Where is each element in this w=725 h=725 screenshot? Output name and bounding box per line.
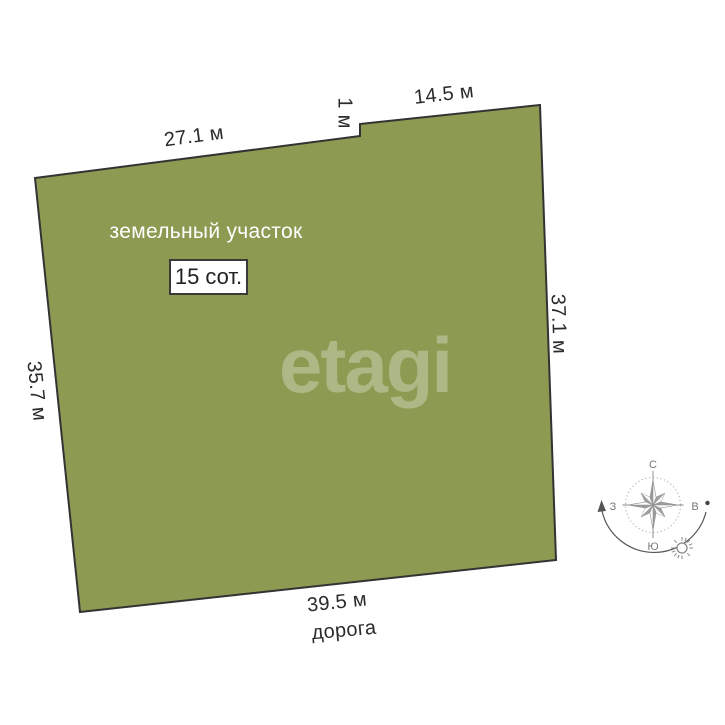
parcel-area-value: 15 сот.: [175, 264, 242, 290]
sun-path-arrowhead-icon: [598, 500, 607, 512]
watermark-logo: etagi: [279, 321, 451, 409]
dimension-right-side: 37.1 м: [545, 294, 570, 355]
sun-icon: [671, 537, 693, 559]
dimension-notch: 1 м: [333, 97, 356, 128]
compass-north-label: С: [649, 459, 657, 471]
compass-south-label: Ю: [647, 541, 658, 553]
parcel-area-badge: 15 сот.: [169, 259, 248, 295]
compass-rose-icon: С З В Ю: [598, 459, 710, 559]
parcel-title: земельный участок: [110, 220, 303, 244]
sun-path-start-dot: [705, 501, 709, 505]
compass-star-main-points: [628, 480, 678, 530]
compass-east-label: В: [691, 501, 698, 513]
land-plot-plan: etagi: [0, 0, 725, 725]
plan-canvas: etagi: [0, 0, 725, 725]
compass-west-label: З: [610, 501, 617, 513]
